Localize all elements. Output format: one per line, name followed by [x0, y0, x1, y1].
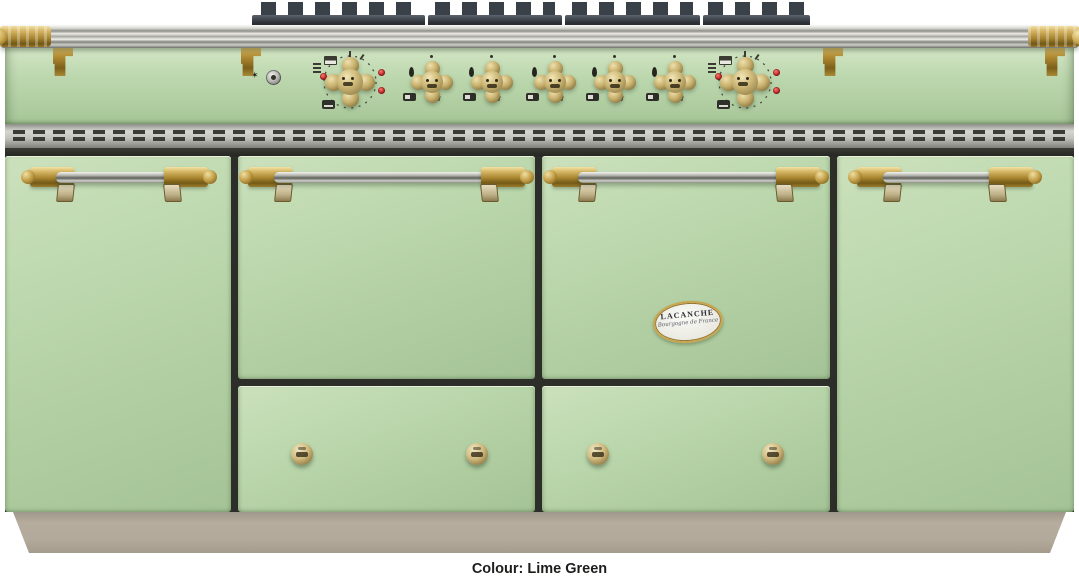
drawer-knob[interactable] [762, 443, 784, 465]
right-oven-door[interactable]: LACANCHE Bourgogne de France [542, 156, 830, 379]
handle-bracket [989, 167, 1033, 187]
handle-tube [274, 172, 499, 183]
indicator-light [773, 87, 780, 94]
control-panel: ✶ [5, 47, 1074, 124]
dial-dot-icon [553, 55, 556, 58]
ignition-button[interactable] [266, 70, 281, 85]
range-cooker: ✶ [5, 0, 1074, 553]
indicator-light [773, 69, 780, 76]
dial-dot-icon [613, 55, 616, 58]
lacanche-badge: LACANCHE Bourgogne de France [651, 298, 724, 346]
vent-shadow [5, 148, 1074, 156]
rail-end-cap [1028, 26, 1079, 47]
indicator-light [378, 69, 385, 76]
left-oven-thermostat-knob[interactable] [325, 57, 375, 107]
dial-setting-marks [708, 63, 716, 73]
left-drawer[interactable] [238, 386, 535, 512]
left-cupboard-door[interactable] [5, 156, 231, 512]
handle-tube [578, 172, 794, 183]
burner-knob-1[interactable] [411, 61, 453, 103]
left-oven-door[interactable] [238, 156, 535, 379]
right-oven-handle[interactable] [552, 164, 820, 200]
plinth [13, 512, 1066, 553]
pan-support-grates [252, 0, 812, 28]
left-oven-handle[interactable] [248, 164, 525, 200]
product-photo-lacanche-range: ✶ [0, 0, 1079, 583]
handle-bracket [164, 167, 208, 187]
indicator-light [378, 87, 385, 94]
drawer-knob[interactable] [466, 443, 488, 465]
right-drawer[interactable] [542, 386, 830, 512]
drawer-knob[interactable] [587, 443, 609, 465]
left-cupboard-handle[interactable] [30, 164, 208, 200]
colour-caption: Colour: Lime Green [0, 561, 1079, 577]
dial-dot-icon [673, 55, 676, 58]
dial-dot-icon [490, 55, 493, 58]
dial-setting-marks [313, 63, 321, 73]
right-oven-thermostat-knob[interactable] [720, 57, 770, 107]
burner-knob-4[interactable] [594, 61, 636, 103]
burner-knob-2[interactable] [471, 61, 513, 103]
towel-rail[interactable] [0, 25, 1079, 48]
vent-strip [5, 124, 1074, 148]
drawer-knob[interactable] [291, 443, 313, 465]
cooker-body: LACANCHE Bourgogne de France [5, 156, 1074, 512]
handle-bracket [481, 167, 525, 187]
right-cupboard-handle[interactable] [857, 164, 1033, 200]
burner-knob-3[interactable] [534, 61, 576, 103]
burner-knob-5[interactable] [654, 61, 696, 103]
right-cupboard-door[interactable] [837, 156, 1074, 512]
handle-bracket [776, 167, 820, 187]
rail-end-cap [0, 26, 51, 47]
dial-dot-icon [430, 55, 433, 58]
